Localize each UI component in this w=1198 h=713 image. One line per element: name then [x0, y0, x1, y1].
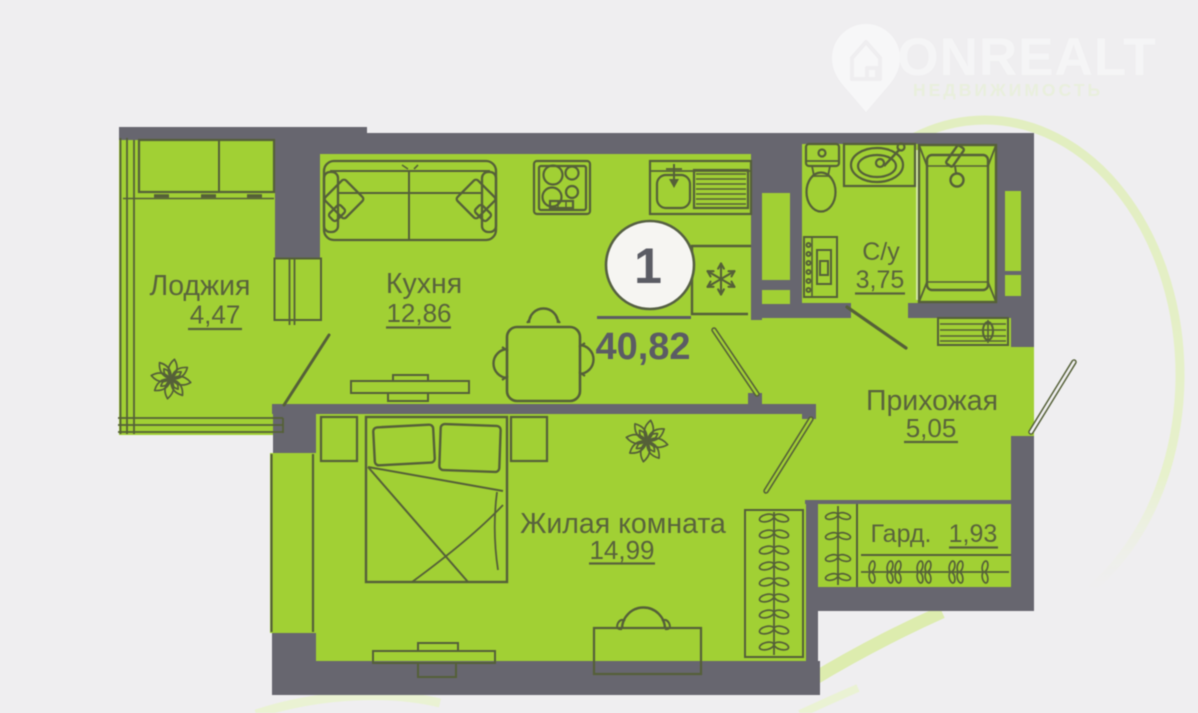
svg-text:НЕДВИЖИМОСТЬ: НЕДВИЖИМОСТЬ [913, 80, 1103, 100]
svg-text:С/у: С/у [862, 238, 900, 266]
svg-text:4,47: 4,47 [190, 300, 241, 330]
svg-text:40,82: 40,82 [595, 326, 690, 368]
svg-text:1: 1 [634, 238, 662, 294]
svg-text:Лоджия: Лоджия [150, 270, 251, 302]
svg-text:ONREALT: ONREALT [897, 28, 1156, 87]
svg-text:Гард.: Гард. [871, 520, 932, 548]
svg-text:12,86: 12,86 [386, 298, 451, 328]
svg-text:1,93: 1,93 [949, 520, 998, 548]
svg-text:Кухня: Кухня [386, 268, 462, 300]
svg-text:3,75: 3,75 [856, 266, 905, 294]
svg-text:5,05: 5,05 [906, 413, 957, 443]
svg-text:14,99: 14,99 [589, 535, 654, 565]
